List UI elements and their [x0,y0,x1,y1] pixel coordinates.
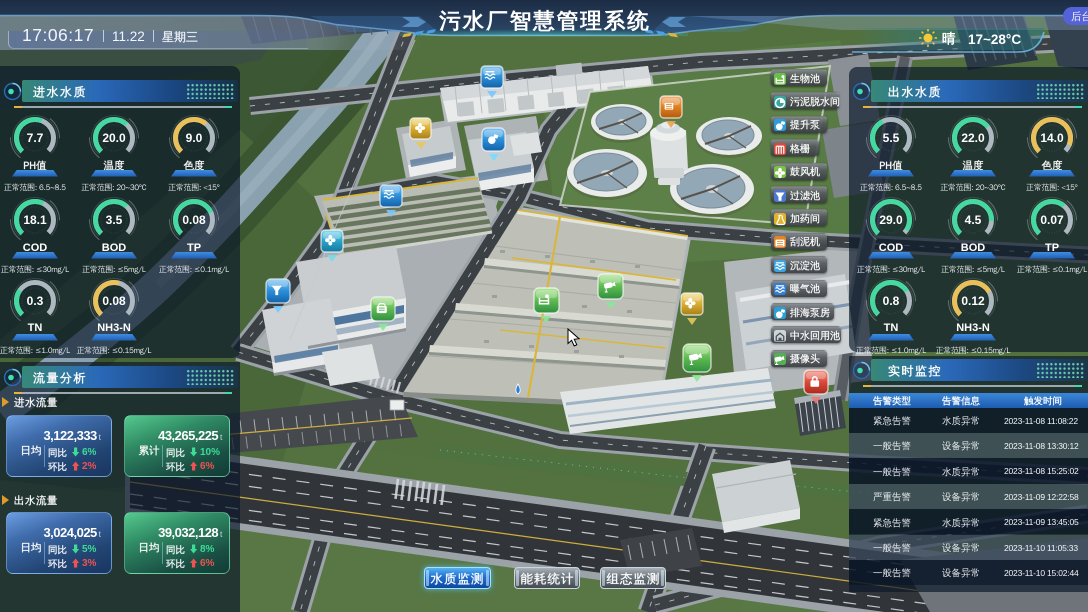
svg-text:5.5: 5.5 [883,131,900,145]
svg-text:3.5: 3.5 [106,213,123,227]
svg-text:22.0: 22.0 [961,131,985,145]
svg-text:0.08: 0.08 [182,213,206,227]
svg-text:4.5: 4.5 [964,213,981,227]
svg-text:18.1: 18.1 [23,213,47,227]
svg-text:0.8: 0.8 [883,294,900,308]
svg-text:29.0: 29.0 [880,213,904,227]
svg-text:9.0: 9.0 [185,131,202,145]
svg-text:20.0: 20.0 [103,131,127,145]
svg-text:7.7: 7.7 [27,131,44,145]
svg-text:0.12: 0.12 [961,294,985,308]
svg-text:0.07: 0.07 [1041,213,1065,227]
svg-text:0.08: 0.08 [103,294,127,308]
svg-text:0.3: 0.3 [27,294,44,308]
svg-text:14.0: 14.0 [1041,131,1065,145]
